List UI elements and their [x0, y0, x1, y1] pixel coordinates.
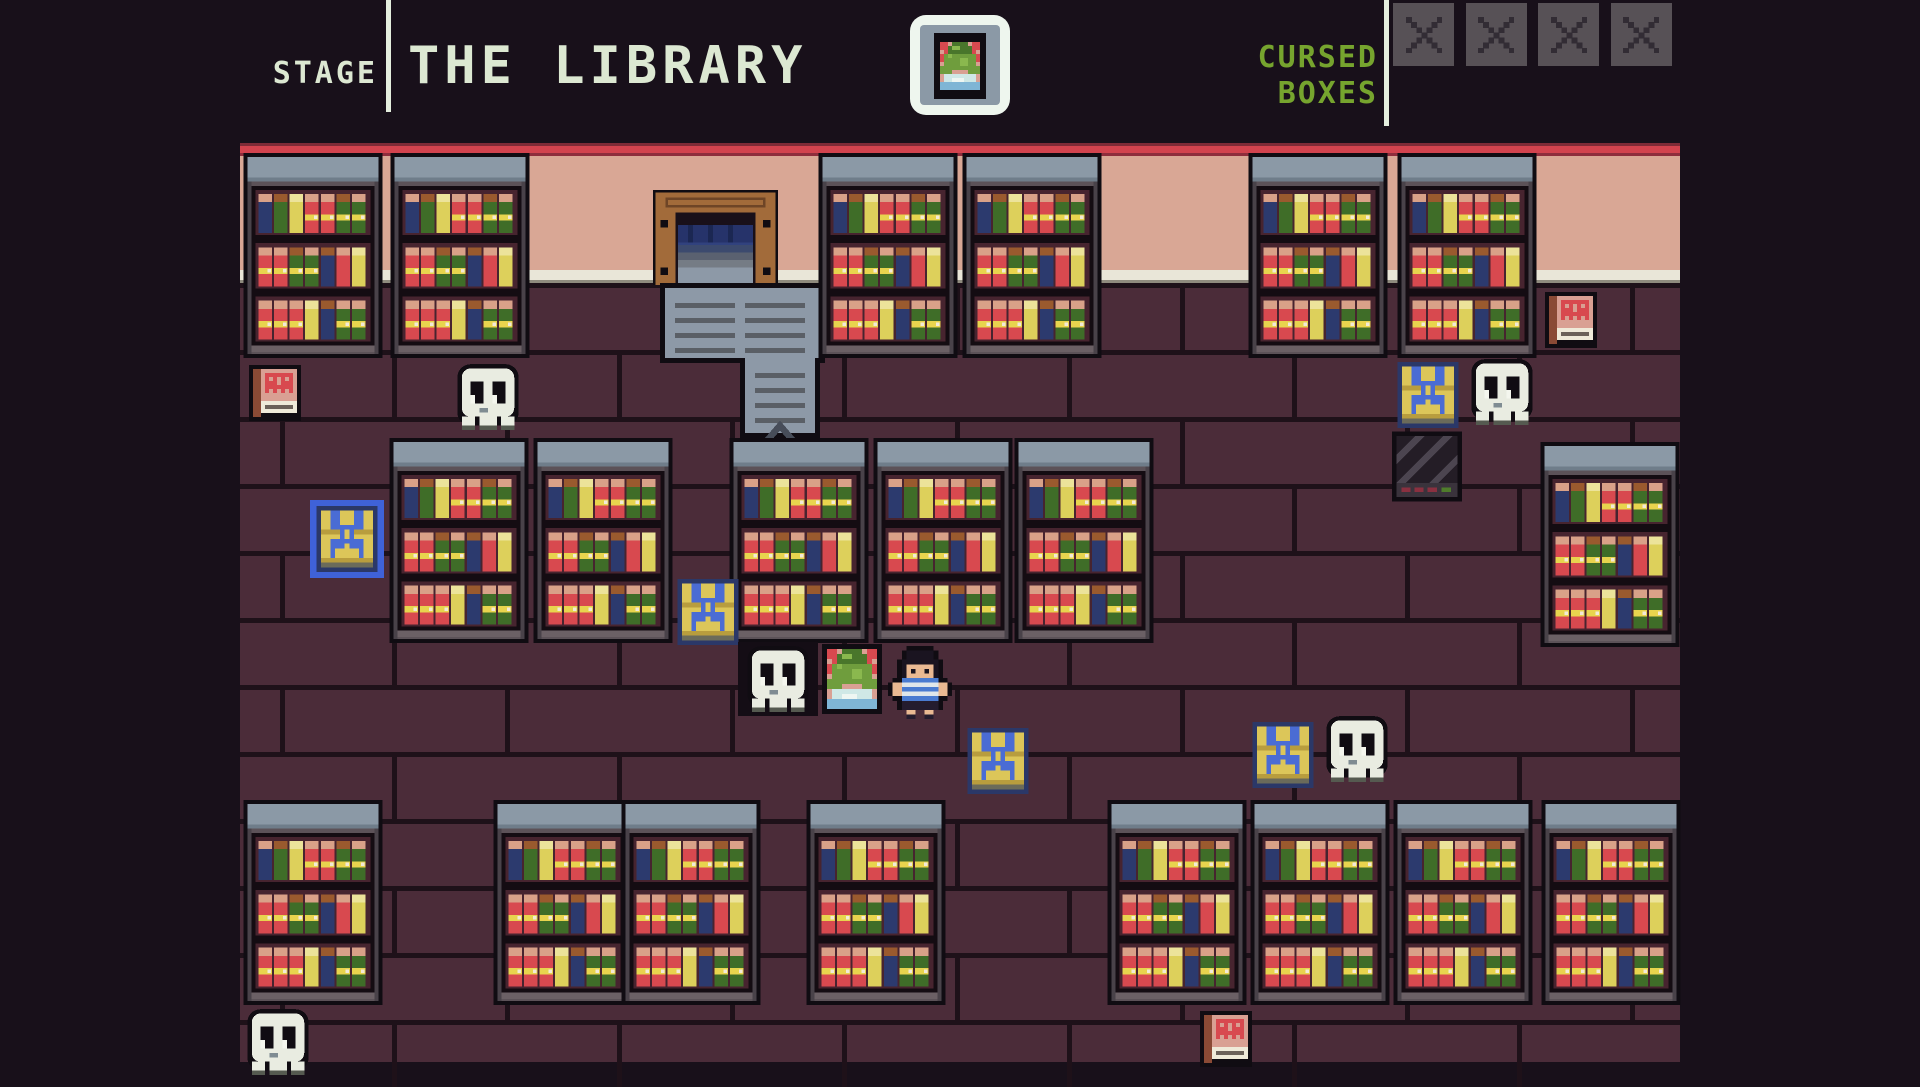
objective-label: CURSED BOXES [1040, 40, 1378, 112]
bookshelf [1393, 800, 1533, 1005]
floor-brick-joint [1067, 891, 1072, 953]
treasure-chest[interactable] [1252, 722, 1314, 788]
floor-brick-joint [1292, 1025, 1297, 1087]
floor-brick-joint [1180, 690, 1185, 752]
bookshelf [818, 153, 958, 358]
floor-brick-joint [1630, 690, 1635, 752]
ghost-enemy[interactable] [1467, 359, 1537, 425]
header-divider-right [1384, 0, 1389, 126]
bookshelf [873, 438, 1013, 643]
floor-brick-joint [955, 958, 960, 1020]
bookshelf [1248, 153, 1388, 358]
bookshelf [1540, 442, 1680, 647]
bookshelf [1541, 800, 1681, 1005]
floor-brick-joint [1180, 288, 1185, 350]
cursed-spellbook[interactable] [249, 364, 301, 422]
floor-brick-joint [1180, 556, 1185, 618]
treasure-chest[interactable] [1397, 362, 1459, 428]
floor-brick-joint [280, 690, 285, 752]
bookshelf [806, 800, 946, 1005]
floor-brick-joint [955, 690, 960, 752]
cursed-spellbook[interactable] [1545, 291, 1597, 349]
ghost-enemy[interactable] [453, 364, 523, 430]
header-divider-left [386, 0, 391, 112]
objective-line1: CURSED [1040, 40, 1378, 76]
bookshelf [390, 153, 530, 358]
floor-brick-joint [1067, 757, 1072, 819]
bookshelf [1397, 153, 1537, 358]
floor-brick-joint [1292, 355, 1297, 417]
player-character[interactable] [888, 646, 952, 719]
floor-brick-joint [1180, 422, 1185, 484]
floor-brick-joint [392, 891, 397, 953]
ghost-enemy[interactable] [738, 642, 818, 716]
floor-brick-joint [505, 690, 510, 752]
floor-brick-joint [1292, 489, 1297, 551]
cursed-spellbook[interactable] [1200, 1010, 1252, 1068]
floor-brick-joint [1405, 690, 1410, 752]
bookshelf [1250, 800, 1390, 1005]
cursed-box-slot-3 [1538, 3, 1599, 66]
cursed-box-slot-1 [1393, 3, 1454, 66]
floor-brick-joint [730, 690, 735, 752]
bookshelf [729, 438, 869, 643]
frog-portrait[interactable] [822, 644, 882, 714]
floor-brick-joint [1517, 1025, 1522, 1087]
floor-brick-joint [617, 1025, 622, 1087]
floor-brick-joint [1292, 623, 1297, 685]
floor-brick-joint [842, 1025, 847, 1087]
bookshelf [621, 800, 761, 1005]
floor-brick-joint [1067, 1025, 1072, 1087]
floor-brick-joint [1067, 355, 1072, 417]
cursed-box[interactable] [1392, 430, 1462, 503]
library-door[interactable] [653, 190, 778, 285]
bookshelf [1014, 438, 1154, 643]
bookshelf [533, 438, 673, 643]
floor-brick-joint [392, 355, 397, 417]
treasure-chest-highlighted[interactable] [310, 500, 384, 578]
bookshelf [1107, 800, 1247, 1005]
floor-brick-joint [1517, 623, 1522, 685]
game-screen: STAGE THE LIBRARY CURSED BOXES [0, 0, 1920, 1080]
floor-brick-joint [1517, 489, 1522, 551]
treasure-chest[interactable] [967, 728, 1029, 794]
library-scene [240, 143, 1680, 1062]
floor-brick-joint [280, 422, 285, 484]
bookshelf [243, 153, 383, 358]
floor-brick-joint [1630, 288, 1635, 350]
cursed-box-slot-4 [1611, 3, 1672, 66]
floor-brick-joint [955, 824, 960, 886]
ghost-enemy[interactable] [243, 1009, 313, 1075]
ghost-enemy[interactable] [1322, 716, 1392, 782]
stage-name: THE LIBRARY [408, 36, 807, 96]
floor-brick-joint [617, 355, 622, 417]
floor-brick-joint [392, 757, 397, 819]
frog-portrait-icon [910, 15, 1010, 115]
floor-brick-joint [392, 1025, 397, 1087]
bookshelf [243, 800, 383, 1005]
objective-line2: BOXES [1040, 76, 1378, 112]
cursed-box-slot-2 [1466, 3, 1527, 66]
bookshelf [389, 438, 529, 643]
floor-brick-joint [1405, 556, 1410, 618]
stage-label: STAGE [0, 56, 378, 91]
floor-brick-joint [280, 556, 285, 618]
treasure-chest[interactable] [677, 579, 739, 645]
bookshelf [962, 153, 1102, 358]
bookshelf [493, 800, 633, 1005]
floor-brick-joint [842, 355, 847, 417]
